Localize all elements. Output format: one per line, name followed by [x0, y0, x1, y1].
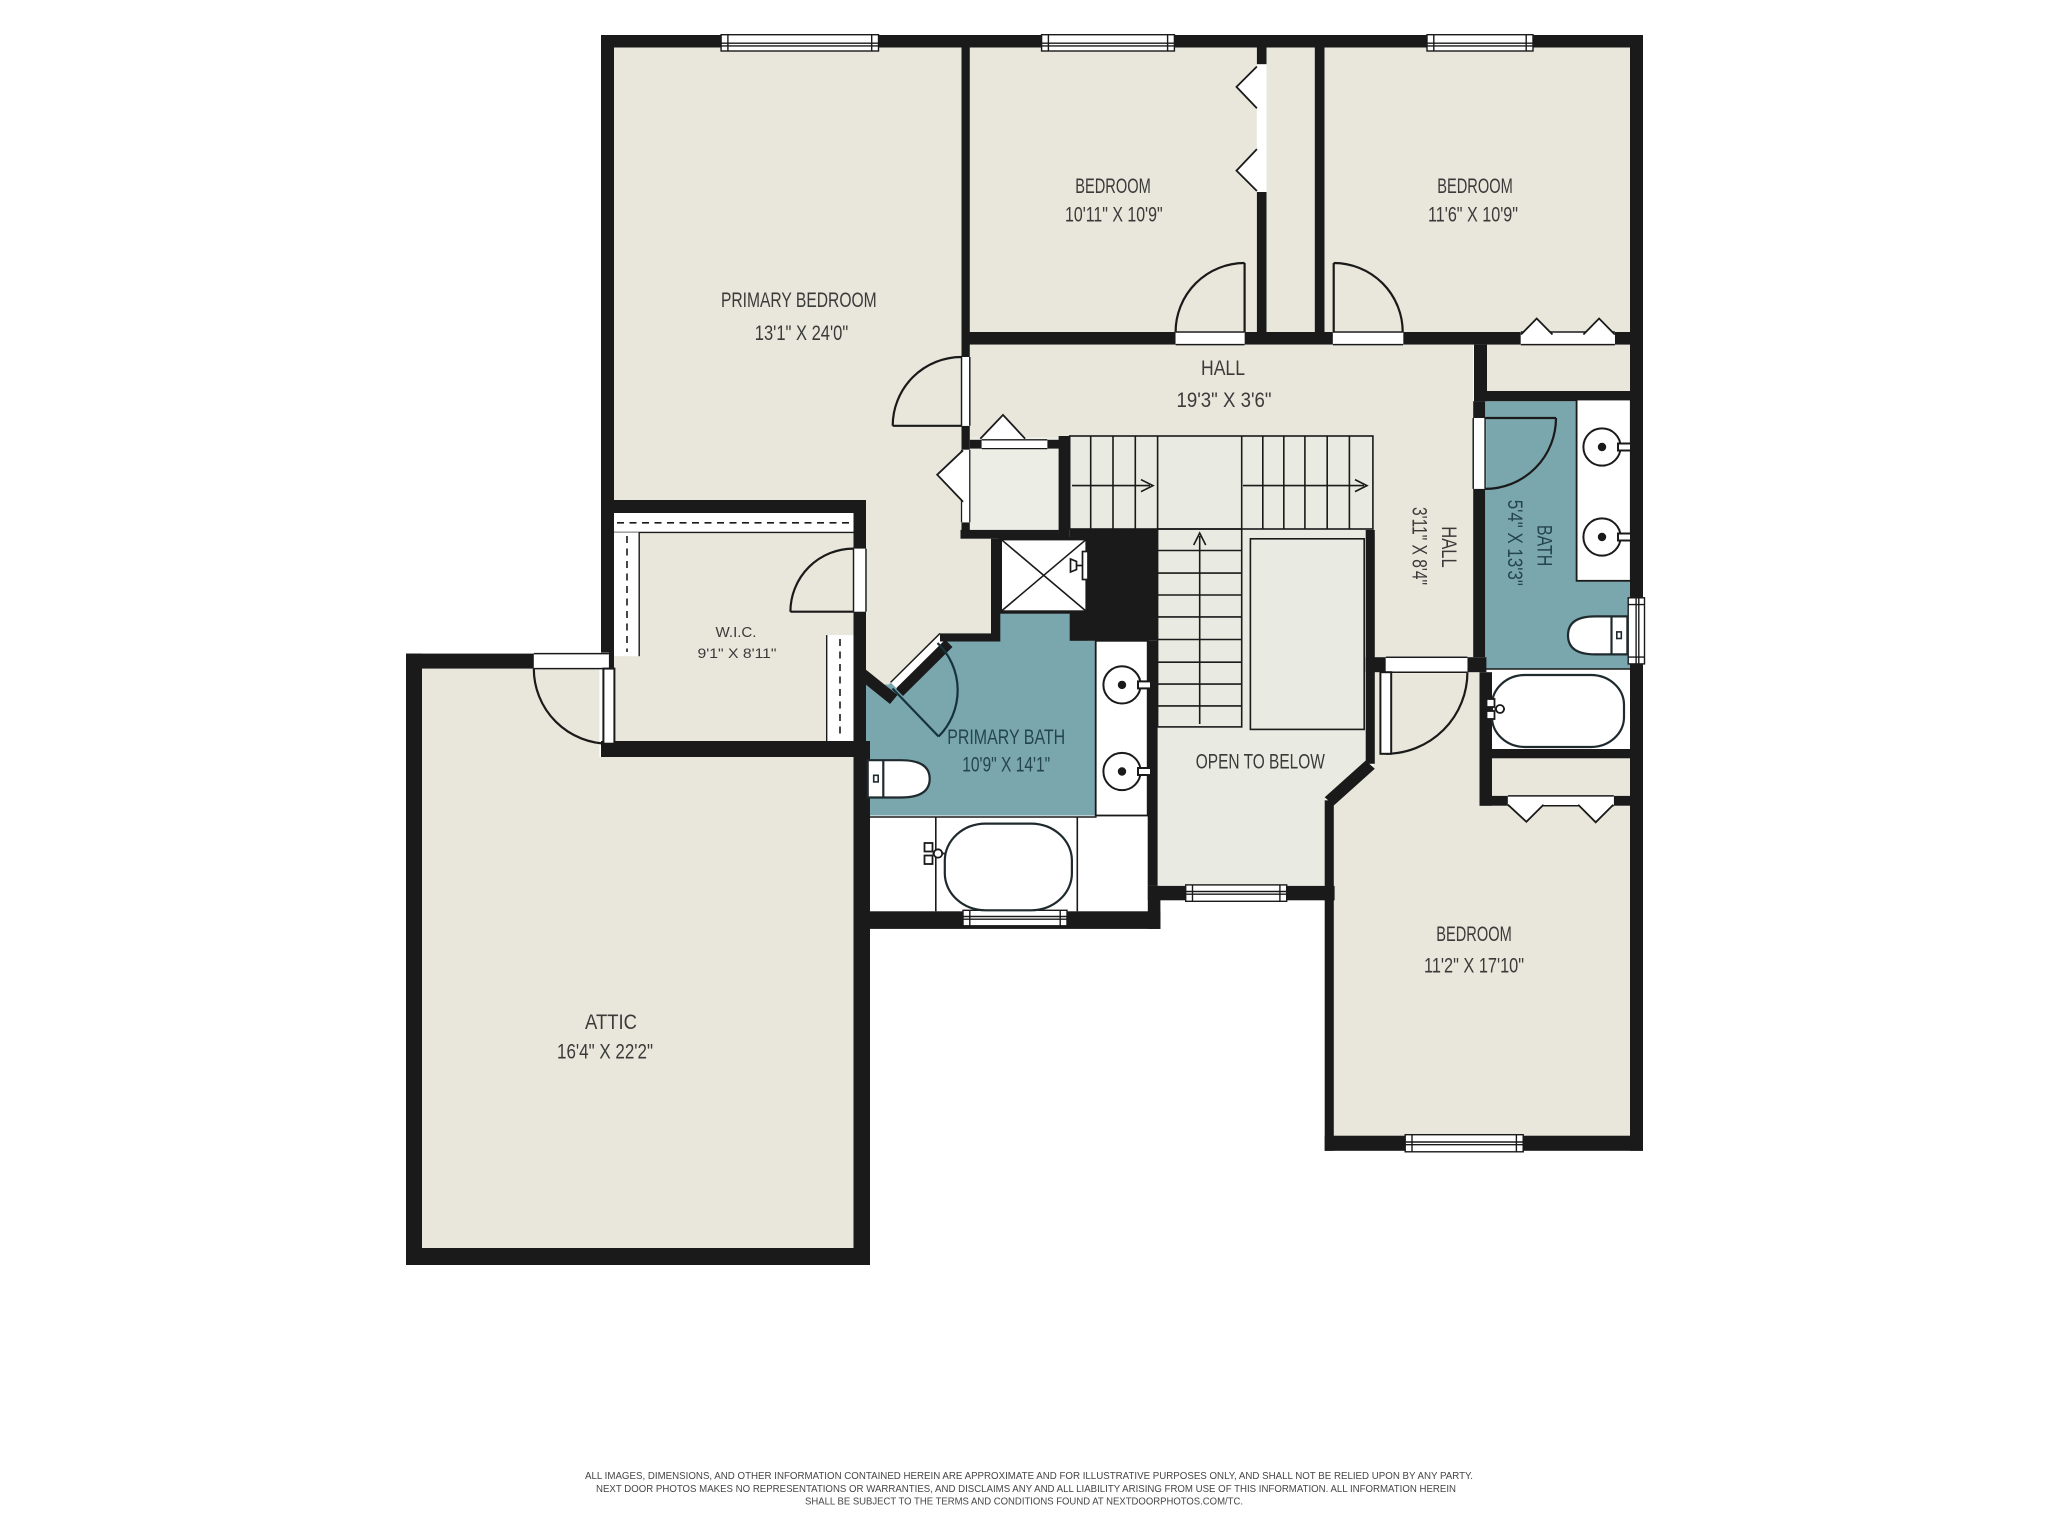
svg-text:16'4" X 22'2": 16'4" X 22'2": [557, 1041, 653, 1064]
svg-text:11'6" X 10'9": 11'6" X 10'9": [1428, 204, 1518, 227]
svg-text:PRIMARY BATH: PRIMARY BATH: [947, 725, 1065, 749]
svg-text:PRIMARY BEDROOM: PRIMARY BEDROOM: [721, 288, 877, 312]
svg-text:9'1" X 8'11": 9'1" X 8'11": [698, 646, 777, 662]
svg-text:10'9" X 14'1": 10'9" X 14'1": [962, 754, 1050, 777]
svg-text:ATTIC: ATTIC: [585, 1010, 637, 1034]
svg-text:13'1" X 24'0": 13'1" X 24'0": [755, 322, 848, 345]
svg-text:BEDROOM: BEDROOM: [1436, 922, 1512, 946]
svg-text:11'2" X 17'10": 11'2" X 17'10": [1424, 955, 1524, 978]
svg-text:5'4" X 13'3": 5'4" X 13'3": [1503, 500, 1526, 586]
svg-text:10'11" X 10'9": 10'11" X 10'9": [1065, 204, 1163, 227]
svg-text:3'11" X 8'4": 3'11" X 8'4": [1408, 507, 1431, 585]
svg-text:HALL: HALL: [1437, 526, 1461, 568]
svg-text:ALL IMAGES, DIMENSIONS, AND OT: ALL IMAGES, DIMENSIONS, AND OTHER INFORM…: [585, 1471, 1473, 1482]
svg-text:NEXT DOOR PHOTOS MAKES NO REPR: NEXT DOOR PHOTOS MAKES NO REPRESENTATION…: [596, 1484, 1456, 1495]
svg-text:OPEN TO BELOW: OPEN TO BELOW: [1196, 750, 1325, 774]
svg-text:SHALL BE SUBJECT TO THE TERMS: SHALL BE SUBJECT TO THE TERMS AND CONDIT…: [805, 1497, 1243, 1508]
svg-text:HALL: HALL: [1201, 356, 1245, 380]
svg-text:19'3" X 3'6": 19'3" X 3'6": [1177, 389, 1272, 412]
svg-text:BEDROOM: BEDROOM: [1075, 174, 1151, 198]
svg-text:BATH: BATH: [1532, 525, 1556, 567]
svg-text:W.I.C.: W.I.C.: [716, 625, 757, 641]
svg-text:BEDROOM: BEDROOM: [1437, 174, 1513, 198]
